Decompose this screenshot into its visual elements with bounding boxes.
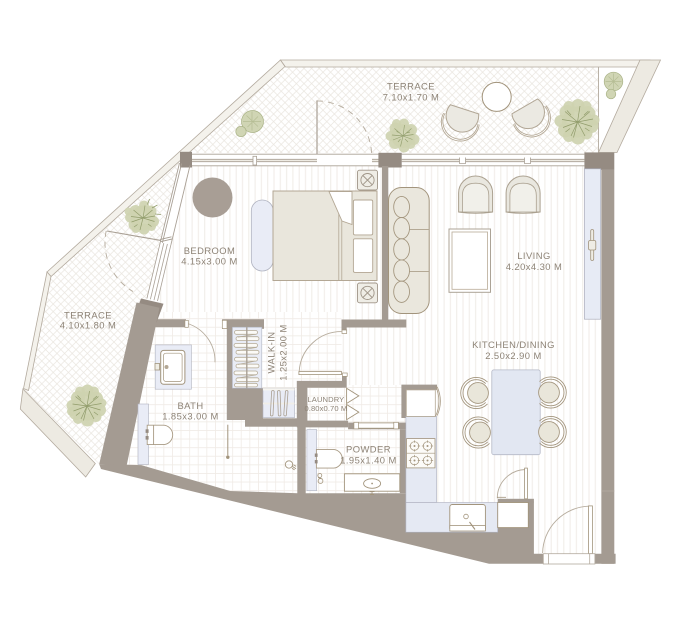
- svg-text:WALK-IN: WALK-IN: [266, 332, 277, 374]
- svg-text:4.20x4.30 M: 4.20x4.30 M: [506, 261, 563, 272]
- svg-text:POWDER: POWDER: [346, 444, 391, 455]
- svg-text:1.85x3.00 M: 1.85x3.00 M: [162, 411, 219, 422]
- svg-text:BEDROOM: BEDROOM: [184, 245, 236, 256]
- svg-text:KITCHEN/DINING: KITCHEN/DINING: [472, 339, 555, 350]
- svg-text:1.25x2.00 M: 1.25x2.00 M: [278, 324, 289, 381]
- svg-text:LIVING: LIVING: [517, 250, 550, 261]
- svg-text:BATH: BATH: [177, 400, 203, 411]
- svg-text:LAUNDRY: LAUNDRY: [307, 395, 344, 404]
- svg-text:1.95x1.40 M: 1.95x1.40 M: [340, 455, 397, 466]
- svg-text:2.50x2.90 M: 2.50x2.90 M: [485, 350, 542, 361]
- svg-text:4.15x3.00 M: 4.15x3.00 M: [181, 256, 238, 267]
- svg-text:4.10x1.80 M: 4.10x1.80 M: [60, 320, 117, 331]
- svg-text:7.10x1.70 M: 7.10x1.70 M: [383, 92, 440, 103]
- svg-text:0.80x0.70 M: 0.80x0.70 M: [304, 404, 347, 413]
- svg-text:TERRACE: TERRACE: [387, 81, 435, 92]
